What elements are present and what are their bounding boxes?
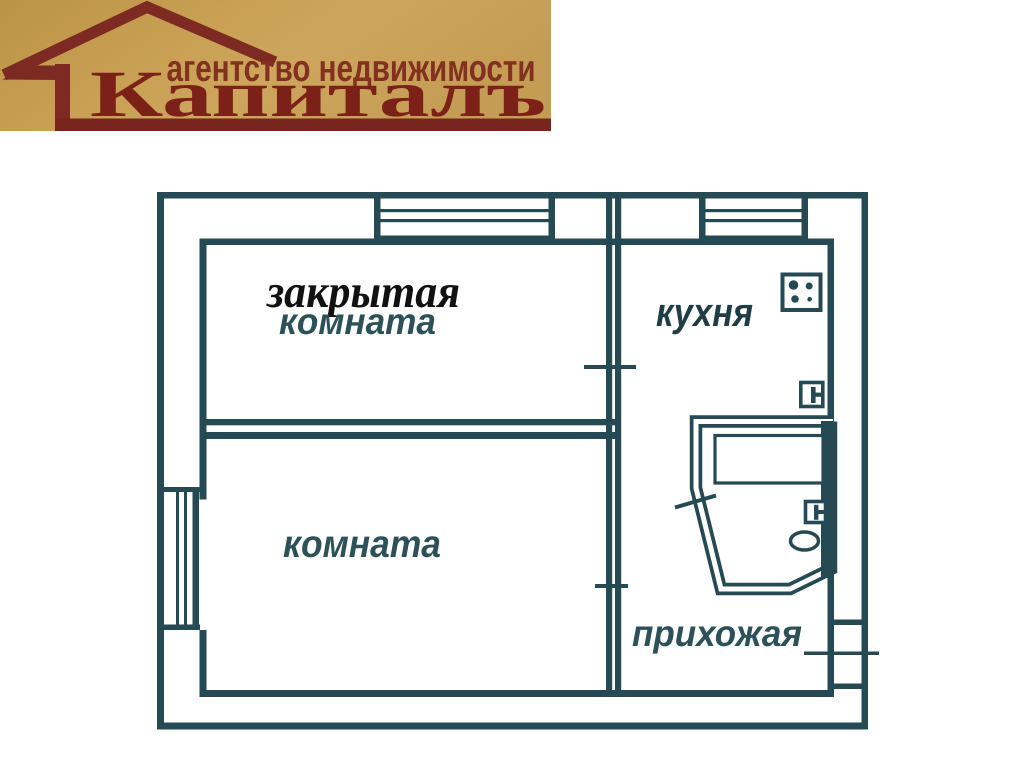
svg-text:Капиталъ: Капиталъ xyxy=(90,58,546,131)
svg-text:комната: комната xyxy=(283,523,441,566)
svg-text:прихожая: прихожая xyxy=(632,613,802,654)
svg-text:комната: комната xyxy=(279,301,436,342)
svg-text:кухня: кухня xyxy=(656,291,753,335)
